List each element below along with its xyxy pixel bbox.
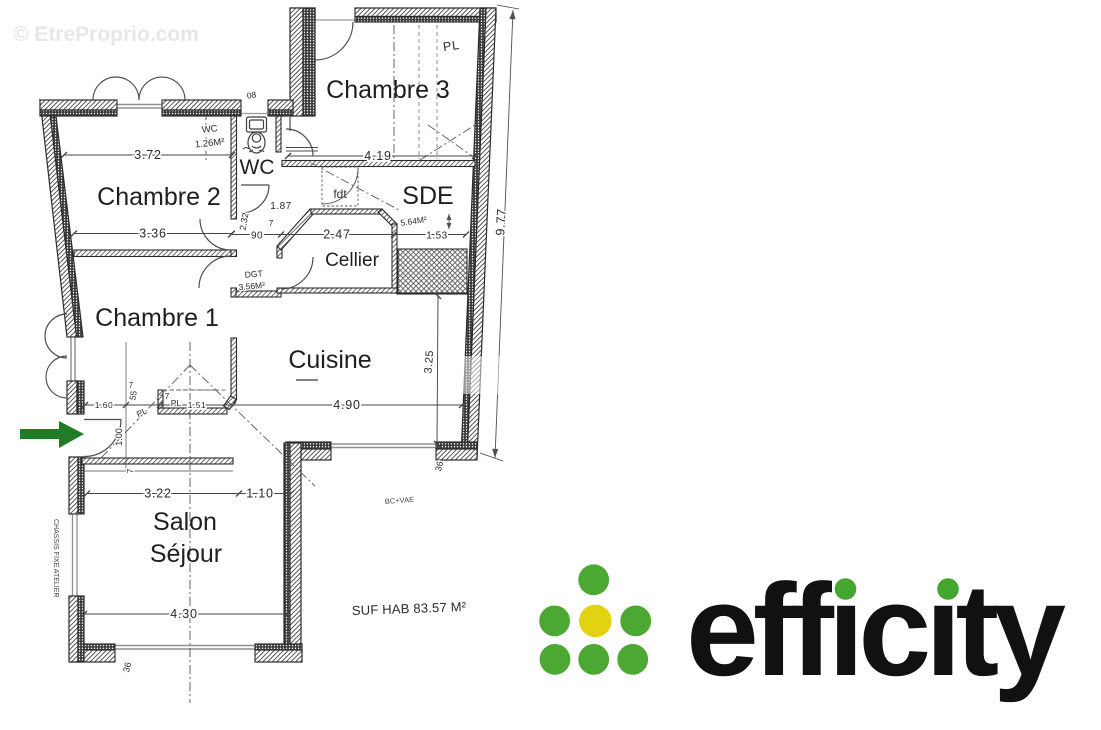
svg-text:7: 7 [125, 468, 135, 473]
svg-text:PL: PL [171, 398, 182, 408]
svg-text:1.00: 1.00 [114, 428, 124, 446]
svg-text:Chambre 3: Chambre 3 [326, 76, 450, 104]
svg-text:Cuisine: Cuisine [288, 346, 371, 374]
svg-text:DGT: DGT [244, 268, 263, 280]
svg-text:Cellier: Cellier [325, 250, 380, 271]
svg-text:3.72: 3.72 [134, 148, 162, 162]
svg-text:1.51: 1.51 [188, 400, 207, 410]
svg-text:4.19: 4.19 [364, 149, 392, 163]
svg-text:1.10: 1.10 [246, 487, 274, 501]
svg-text:08: 08 [246, 89, 257, 101]
svg-text:1.53: 1.53 [426, 231, 447, 242]
svg-text:Chambre 2: Chambre 2 [97, 183, 221, 211]
svg-text:WC: WC [201, 123, 218, 136]
svg-text:© EtreProprio.com: © EtreProprio.com [13, 23, 199, 46]
svg-text:7: 7 [129, 381, 134, 390]
svg-text:7: 7 [269, 218, 274, 228]
svg-text:4.90: 4.90 [333, 398, 361, 412]
svg-text:efficity: efficity [686, 556, 1066, 703]
svg-text:SDE: SDE [402, 182, 453, 210]
svg-text:CHASSIS FIXE ATELIER: CHASSIS FIXE ATELIER [52, 519, 59, 597]
svg-text:3.22: 3.22 [144, 487, 172, 501]
svg-text:7: 7 [165, 391, 170, 401]
svg-text:PL: PL [442, 38, 461, 54]
svg-text:1.60: 1.60 [95, 400, 114, 410]
svg-text:Séjour: Séjour [150, 540, 222, 568]
svg-text:Salon: Salon [153, 508, 217, 536]
svg-text:Chambre 1: Chambre 1 [95, 304, 219, 332]
svg-text:3.36: 3.36 [139, 227, 167, 241]
svg-text:55: 55 [127, 390, 139, 401]
svg-text:4.30: 4.30 [170, 607, 198, 621]
svg-text:2.47: 2.47 [323, 228, 351, 242]
svg-text:fdt: fdt [333, 187, 347, 201]
svg-text:1.87: 1.87 [270, 201, 291, 212]
svg-text:3.25: 3.25 [422, 350, 436, 374]
svg-text:90: 90 [251, 231, 263, 242]
svg-text:9.77: 9.77 [493, 208, 508, 236]
svg-text:WC: WC [240, 156, 275, 179]
